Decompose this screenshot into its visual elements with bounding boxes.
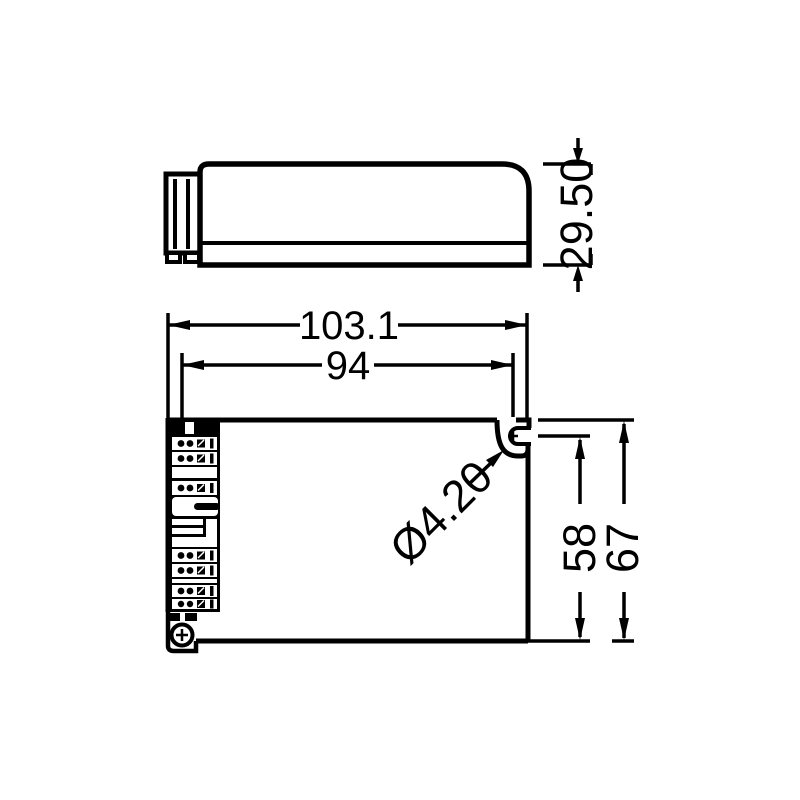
dim-arrow-down-icon — [619, 618, 629, 640]
dim-arrow-right-icon — [505, 320, 527, 330]
dim-height-label: 29.50 — [551, 158, 602, 271]
dim-overall-width-label: 103.1 — [299, 304, 399, 348]
side-view-housing-outline — [200, 164, 529, 265]
connector-tab-foot-left — [167, 253, 180, 262]
terminal-cell — [172, 481, 217, 495]
dim-arrow-left-icon — [182, 360, 204, 370]
terminal-cell — [172, 599, 217, 609]
dim-arrow-down-icon — [575, 618, 585, 640]
side-view: 29.50 — [166, 138, 602, 292]
dim-mounting-pitch-label: 94 — [326, 344, 371, 388]
terminal-cell — [172, 452, 217, 465]
terminal-cell — [172, 437, 217, 450]
terminal-cell — [172, 585, 217, 597]
dim-arrow-up-icon — [619, 421, 629, 443]
terminal-cell — [172, 549, 217, 562]
ballast-dimension-drawing: 29.50 — [0, 0, 800, 800]
dimension-hole-to-bottom: 58 — [528, 436, 605, 641]
connector-tab-foot-right — [185, 253, 199, 262]
plan-view: 103.1 94 Ø4.20 58 — [168, 304, 648, 651]
dim-arrow-up-icon — [575, 437, 585, 459]
terminal-block — [168, 420, 220, 612]
side-view-connector-tab — [166, 174, 200, 253]
terminal-header-notch — [185, 422, 194, 434]
dim-arrow-left-icon — [168, 320, 190, 330]
terminal-cell — [172, 564, 217, 577]
dimension-mounting-pitch: 94 — [182, 344, 513, 424]
technical-drawing-page: 29.50 — [0, 0, 800, 800]
plan-body-fill — [168, 420, 528, 641]
clamp-stub-right — [185, 613, 197, 621]
terminal-release-slot — [172, 497, 220, 516]
dim-arrow-right-icon — [491, 360, 513, 370]
clamp-stub-left — [168, 613, 180, 621]
dim-67-label: 67 — [597, 523, 648, 573]
dimension-height: 29.50 — [543, 138, 602, 292]
